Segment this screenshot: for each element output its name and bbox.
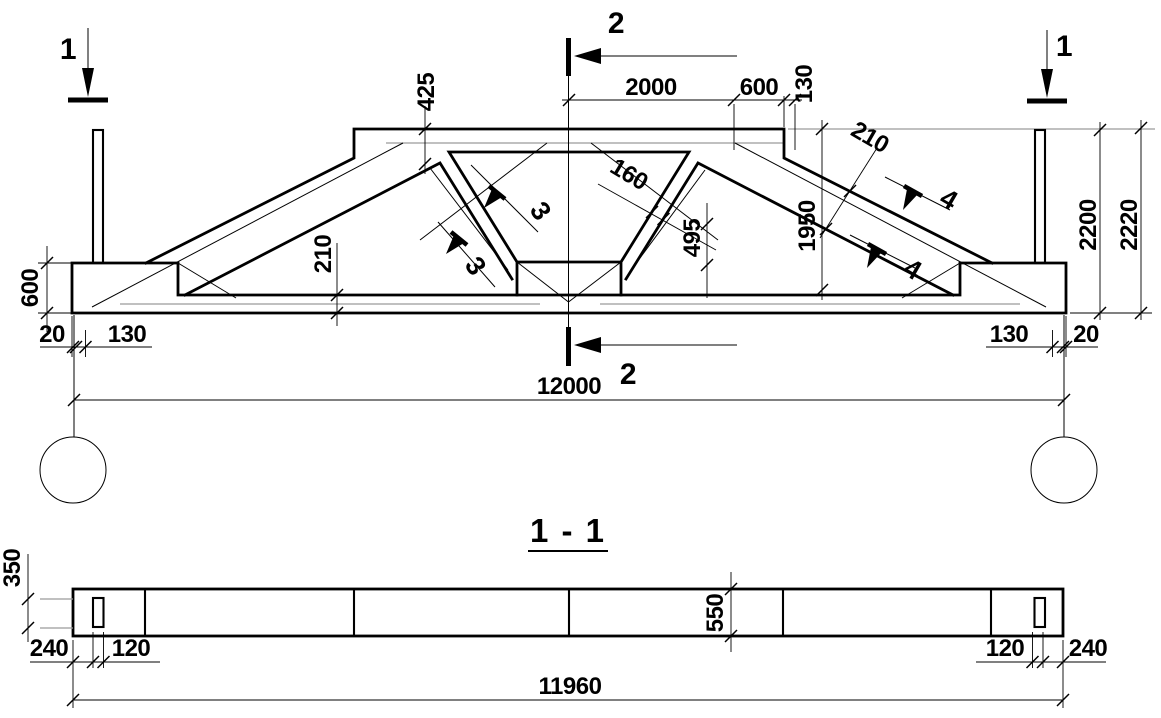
section-arrow-down-icon bbox=[1041, 69, 1053, 98]
dim-slot-length: 350 bbox=[0, 549, 26, 588]
elevation-dimension-ticks bbox=[41, 94, 1147, 406]
dim-slot-width-right: 120 bbox=[986, 635, 1025, 662]
dim-end-offset-right: 130 bbox=[990, 321, 1029, 348]
section-marker-1-left: 1 bbox=[60, 28, 108, 100]
section-arrow-left-icon bbox=[574, 48, 601, 64]
plan-dimension-labels: 350 240 120 550 120 240 11960 bbox=[0, 549, 1107, 700]
plan-division-lines bbox=[145, 589, 991, 636]
section-label-2-bottom: 2 bbox=[620, 358, 636, 391]
dim-edge-to-slot-left: 240 bbox=[30, 635, 69, 662]
section-label-1-right: 1 bbox=[1056, 30, 1072, 63]
dim-top-end-seg: 600 bbox=[740, 74, 779, 101]
dim-overall-length: 11960 bbox=[539, 673, 602, 700]
dim-overall-height: 2220 bbox=[1116, 199, 1143, 251]
dim-end-gap-right: 20 bbox=[1073, 321, 1099, 348]
section-marker-4-upper: 4 bbox=[885, 177, 963, 216]
dim-end-offset-left: 130 bbox=[108, 321, 147, 348]
lifting-post-right bbox=[1035, 130, 1045, 263]
lifting-post-left bbox=[93, 130, 103, 263]
dim-slope-chord-thickness: 210 bbox=[846, 116, 893, 159]
dim-chord-depth: 425 bbox=[413, 73, 440, 112]
truss-drawing-sheet: 1 1 2 2 3 3 4 4 bbox=[0, 0, 1161, 718]
section-arrow-down-icon bbox=[82, 68, 94, 97]
elevation-aux-lines bbox=[120, 129, 1155, 304]
section-label-3-lower: 3 bbox=[459, 251, 492, 280]
dim-span: 12000 bbox=[537, 373, 601, 400]
section-arrow-left-icon bbox=[574, 337, 601, 353]
dim-slot-width-left: 120 bbox=[112, 635, 151, 662]
dim-top-step: 130 bbox=[791, 65, 818, 104]
elevation-thin-lines bbox=[92, 76, 1046, 327]
dim-height: 2200 bbox=[1075, 199, 1102, 251]
dim-edge-to-slot-right: 240 bbox=[1069, 635, 1108, 662]
lifting-slot-left bbox=[93, 598, 104, 627]
dim-end-gap-left: 20 bbox=[39, 321, 65, 348]
lifting-slot-right bbox=[1035, 598, 1046, 627]
section-label-4-upper: 4 bbox=[935, 183, 963, 216]
section-marker-3-upper: 3 bbox=[471, 165, 557, 232]
dim-bottom-chord-thickness: 210 bbox=[310, 235, 337, 274]
dim-beam-width: 550 bbox=[702, 594, 729, 633]
section-marker-1-right: 1 bbox=[1027, 30, 1072, 101]
section-label-2-top: 2 bbox=[608, 7, 624, 40]
section-label-1-left: 1 bbox=[60, 33, 76, 66]
dim-half-span-top: 2000 bbox=[625, 74, 677, 101]
section-label-3-upper: 3 bbox=[524, 196, 557, 225]
axis-bubble-left bbox=[40, 437, 106, 503]
section-label-4-lower: 4 bbox=[899, 253, 927, 286]
section-marker-3-lower: 3 bbox=[438, 222, 495, 287]
dim-web-height: 1950 bbox=[794, 200, 821, 252]
elevation-dimension-labels: 2000 600 130 425 600 210 160 495 1950 21… bbox=[17, 65, 1143, 400]
plan-view: 1 - 1 bbox=[0, 512, 1107, 708]
elevation-dimension-lines bbox=[38, 96, 1152, 400]
plan-title: 1 - 1 bbox=[530, 512, 606, 549]
dim-node-height: 495 bbox=[679, 219, 706, 258]
axis-bubble-right bbox=[1031, 437, 1097, 503]
dim-support-height: 600 bbox=[17, 269, 44, 308]
left-web-opening-edge bbox=[185, 163, 512, 295]
section-marker-2-top: 2 bbox=[569, 7, 738, 76]
truss-drawing: 1 1 2 2 3 3 4 4 bbox=[0, 0, 1161, 718]
